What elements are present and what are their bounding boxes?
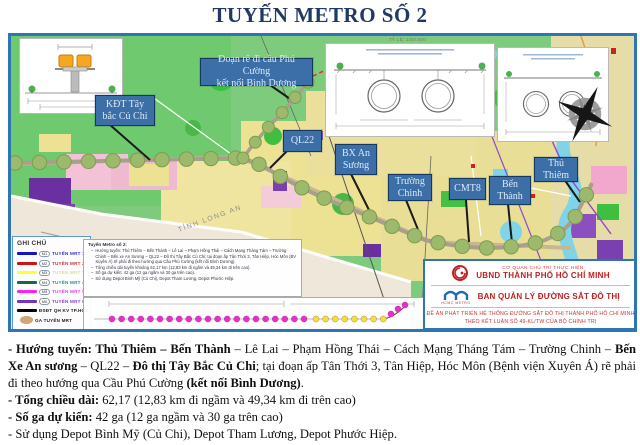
- note-line: Hướng tuyến: Thủ Thiêm – Bến Thành – Lê …: [88, 248, 297, 265]
- label-kdt-tay-bac-cu-chi: KĐT Tây bắc Củ Chi: [95, 95, 155, 126]
- description-stations: - Số ga dự kiến: 42 ga (12 ga ngầm và 30…: [8, 409, 636, 426]
- page-title: TUYẾN METRO SỐ 2: [0, 3, 640, 28]
- legend: GHI CHÚ M1TUYẾN MRT 1M2TUYẾN MRT 2M3TUYẾ…: [12, 236, 91, 332]
- legend-item: M4TUYẾN MRT 4: [17, 278, 86, 288]
- project-title-line2: THEO KẾT LUẬN SỐ 49-KL/TW CỦA BỘ CHÍNH T…: [465, 318, 597, 326]
- legend-item: M1TUYẾN MRT 1: [17, 249, 86, 259]
- metro-map: TỈNH LONG AN: [8, 33, 637, 332]
- route-note-box: Tuyến Metro số 2: Hướng tuyến: Thủ Thiêm…: [83, 239, 302, 297]
- legend-item: M2TUYẾN MRT 2: [17, 259, 86, 269]
- legend-item: M3TUYẾN MRT 3: [17, 268, 86, 278]
- label-ql22: QL22: [283, 130, 322, 152]
- compass-rose-icon: [554, 83, 616, 145]
- map-scale-note: TỶ LỆ: 1/50.000: [389, 37, 426, 42]
- label-cmt8: CMT8: [449, 178, 486, 200]
- city-emblem-icon: [451, 264, 469, 282]
- note-line: Sử dụng Depot Bình Mỹ (Củ Chi), Depot Th…: [88, 276, 297, 282]
- board-name: BAN QUẢN LÝ ĐƯỜNG SẮT ĐÔ THỊ: [478, 292, 620, 301]
- project-title-line1: ĐỀ ÁN PHÁT TRIỂN HỆ THỐNG ĐƯỜNG SẮT ĐÔ T…: [427, 310, 635, 318]
- legend-rows: M1TUYẾN MRT 1M2TUYẾN MRT 2M3TUYẾN MRT 3M…: [17, 249, 86, 325]
- legend-item: M5TUYẾN MRT 5: [17, 287, 86, 297]
- label-bx-an-suong: BX An Sương: [335, 144, 377, 175]
- legend-item: M6TUYẾN MRT 6: [17, 297, 86, 307]
- hcmc-metro-logo-text: HCMC METRO: [441, 301, 470, 305]
- legend-item: ĐSĐT QH KV TP.HCM: [17, 306, 86, 316]
- label-truong-chinh: Trường Chinh: [388, 174, 432, 201]
- route-description: - Hướng tuyến: Thủ Thiêm – Bến Thành – L…: [8, 341, 636, 443]
- slide: TUYẾN METRO SỐ 2: [0, 0, 640, 445]
- agency-info-box: CƠ QUAN CHỦ TRÌ THỰC HIỆN UBND THÀNH PHỐ…: [423, 259, 637, 330]
- description-length: - Tổng chiều dài: 62,17 (12,83 km đi ngầ…: [8, 392, 636, 409]
- label-ben-thanh: Bến Thành: [489, 176, 531, 205]
- hcmc-metro-logo-icon: [443, 288, 469, 301]
- description-route: - Hướng tuyến: Thủ Thiêm – Bến Thành – L…: [8, 341, 636, 392]
- legend-title: GHI CHÚ: [17, 240, 86, 247]
- legend-item: GA TUYẾN MRT: [17, 316, 86, 326]
- label-thu-thiem: Thủ Thiêm: [534, 157, 578, 182]
- description-depots: - Sử dụng Depot Bình Mỹ (Củ Chi), Depot …: [8, 426, 636, 443]
- note-title: Tuyến Metro số 2:: [88, 242, 297, 247]
- label-phu-cuong-branch: Đoạn rẽ đi cầu Phú Cường kết nối Bình Dư…: [200, 58, 313, 86]
- agency-name: UBND THÀNH PHỐ HỒ CHÍ MINH: [476, 271, 610, 280]
